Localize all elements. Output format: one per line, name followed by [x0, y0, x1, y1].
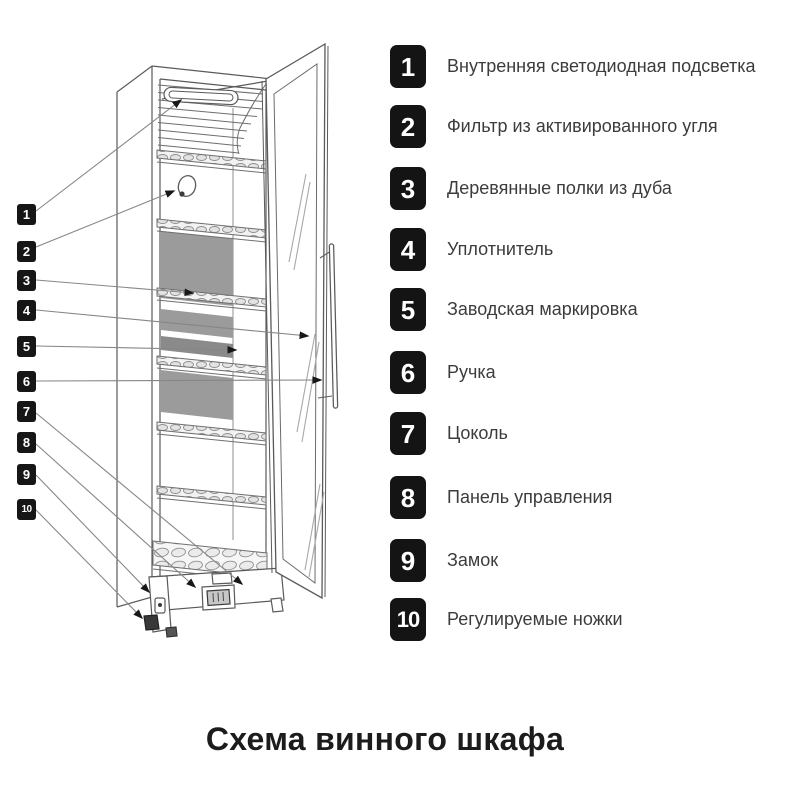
- legend-number-chip: 3: [390, 167, 426, 210]
- legend-label: Регулируемые ножки: [447, 609, 623, 630]
- legend-label: Цоколь: [447, 423, 508, 444]
- legend-row: 10 Регулируемые ножки: [390, 598, 623, 641]
- legend-row: 2 Фильтр из активированного угля: [390, 105, 718, 148]
- callout-chip-10: 10: [17, 499, 36, 520]
- callout-chip-3: 3: [17, 270, 36, 291]
- legend-row: 4 Уплотнитель: [390, 228, 553, 271]
- callout-chip-2: 2: [17, 241, 36, 262]
- callout-chip-9: 9: [17, 464, 36, 485]
- legend-number-chip: 6: [390, 351, 426, 394]
- legend-number-chip: 10: [390, 598, 426, 641]
- side-panel: [117, 66, 152, 607]
- cabinet-body: [117, 66, 278, 607]
- legend-row: 7 Цоколь: [390, 412, 508, 455]
- legend-number-chip: 7: [390, 412, 426, 455]
- plinth: [144, 568, 284, 637]
- callout-chip-5: 5: [17, 336, 36, 357]
- carbon-filter: [176, 174, 198, 199]
- legend-label: Уплотнитель: [447, 239, 553, 260]
- legend-row: 3 Деревянные полки из дуба: [390, 167, 672, 210]
- callout-chip-1: 1: [17, 204, 36, 225]
- adjustable-foot: [271, 598, 283, 612]
- legend-label: Замок: [447, 550, 498, 571]
- legend-label: Заводская маркировка: [447, 299, 638, 320]
- callout-chip-4: 4: [17, 300, 36, 321]
- legend-label: Деревянные полки из дуба: [447, 178, 672, 199]
- adjustable-foot: [144, 615, 159, 630]
- callout-line-2: [36, 191, 174, 247]
- legend-row: 8 Панель управления: [390, 476, 612, 519]
- callout-line-8: [36, 444, 195, 587]
- diagram-title: Схема винного шкафа: [0, 721, 770, 758]
- callout-chip-8: 8: [17, 432, 36, 453]
- vent-notch: [212, 573, 232, 584]
- legend-number-chip: 2: [390, 105, 426, 148]
- callout-chip-6: 6: [17, 371, 36, 392]
- callout-line-10: [36, 510, 142, 618]
- adjustable-foot: [166, 627, 177, 637]
- factory-marking-strip: [161, 336, 233, 358]
- legend-row: 9 Замок: [390, 539, 498, 582]
- top-front-edge: [152, 66, 272, 79]
- cabinet-door: [262, 44, 336, 598]
- legend-row: 5 Заводская маркировка: [390, 288, 638, 331]
- wine-cabinet-diagram-page: 1 2 3 4 5 6 7 8 9 10 1 Внутренняя светод…: [0, 0, 800, 800]
- shelf: [157, 422, 266, 445]
- legend-label: Панель управления: [447, 487, 612, 508]
- door-right-edge: [325, 46, 328, 597]
- keyhole: [158, 603, 162, 607]
- led-light: [164, 87, 239, 105]
- legend-number-chip: 9: [390, 539, 426, 582]
- legend-label: Внутренняя светодиодная подсветка: [447, 56, 756, 77]
- legend-row: 1 Внутренняя светодиодная подсветка: [390, 45, 756, 88]
- legend-label: Фильтр из активированного угля: [447, 116, 718, 137]
- back-panel: [161, 370, 233, 420]
- legend-row: 6 Ручка: [390, 351, 496, 394]
- callout-chip-7: 7: [17, 401, 36, 422]
- legend-number-chip: 5: [390, 288, 426, 331]
- legend-number-chip: 8: [390, 476, 426, 519]
- legend-label: Ручка: [447, 362, 496, 383]
- shelf: [157, 150, 266, 173]
- shelf: [157, 486, 266, 509]
- legend-number-chip: 1: [390, 45, 426, 88]
- legend-number-chip: 4: [390, 228, 426, 271]
